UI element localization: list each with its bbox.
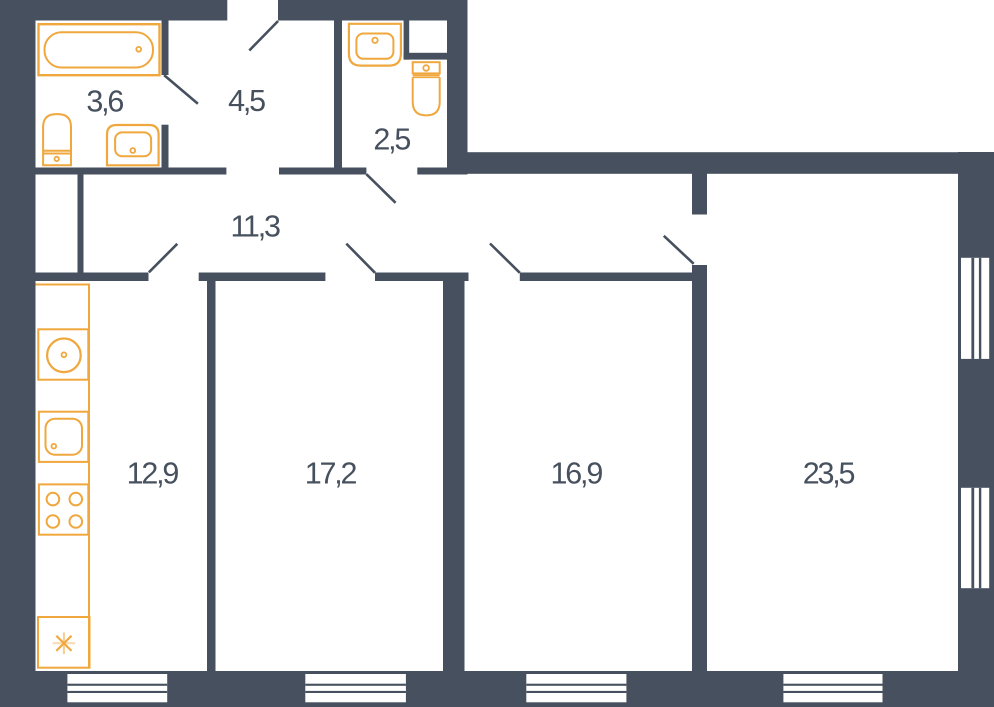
svg-text:2,5: 2,5 — [373, 123, 410, 157]
svg-text:17,2: 17,2 — [305, 456, 357, 490]
svg-text:4,5: 4,5 — [228, 84, 265, 118]
svg-text:3,6: 3,6 — [86, 84, 123, 118]
svg-text:11,3: 11,3 — [230, 210, 280, 244]
svg-text:23,5: 23,5 — [803, 456, 855, 490]
svg-text:12,9: 12,9 — [127, 456, 179, 490]
svg-text:16,9: 16,9 — [551, 456, 603, 490]
